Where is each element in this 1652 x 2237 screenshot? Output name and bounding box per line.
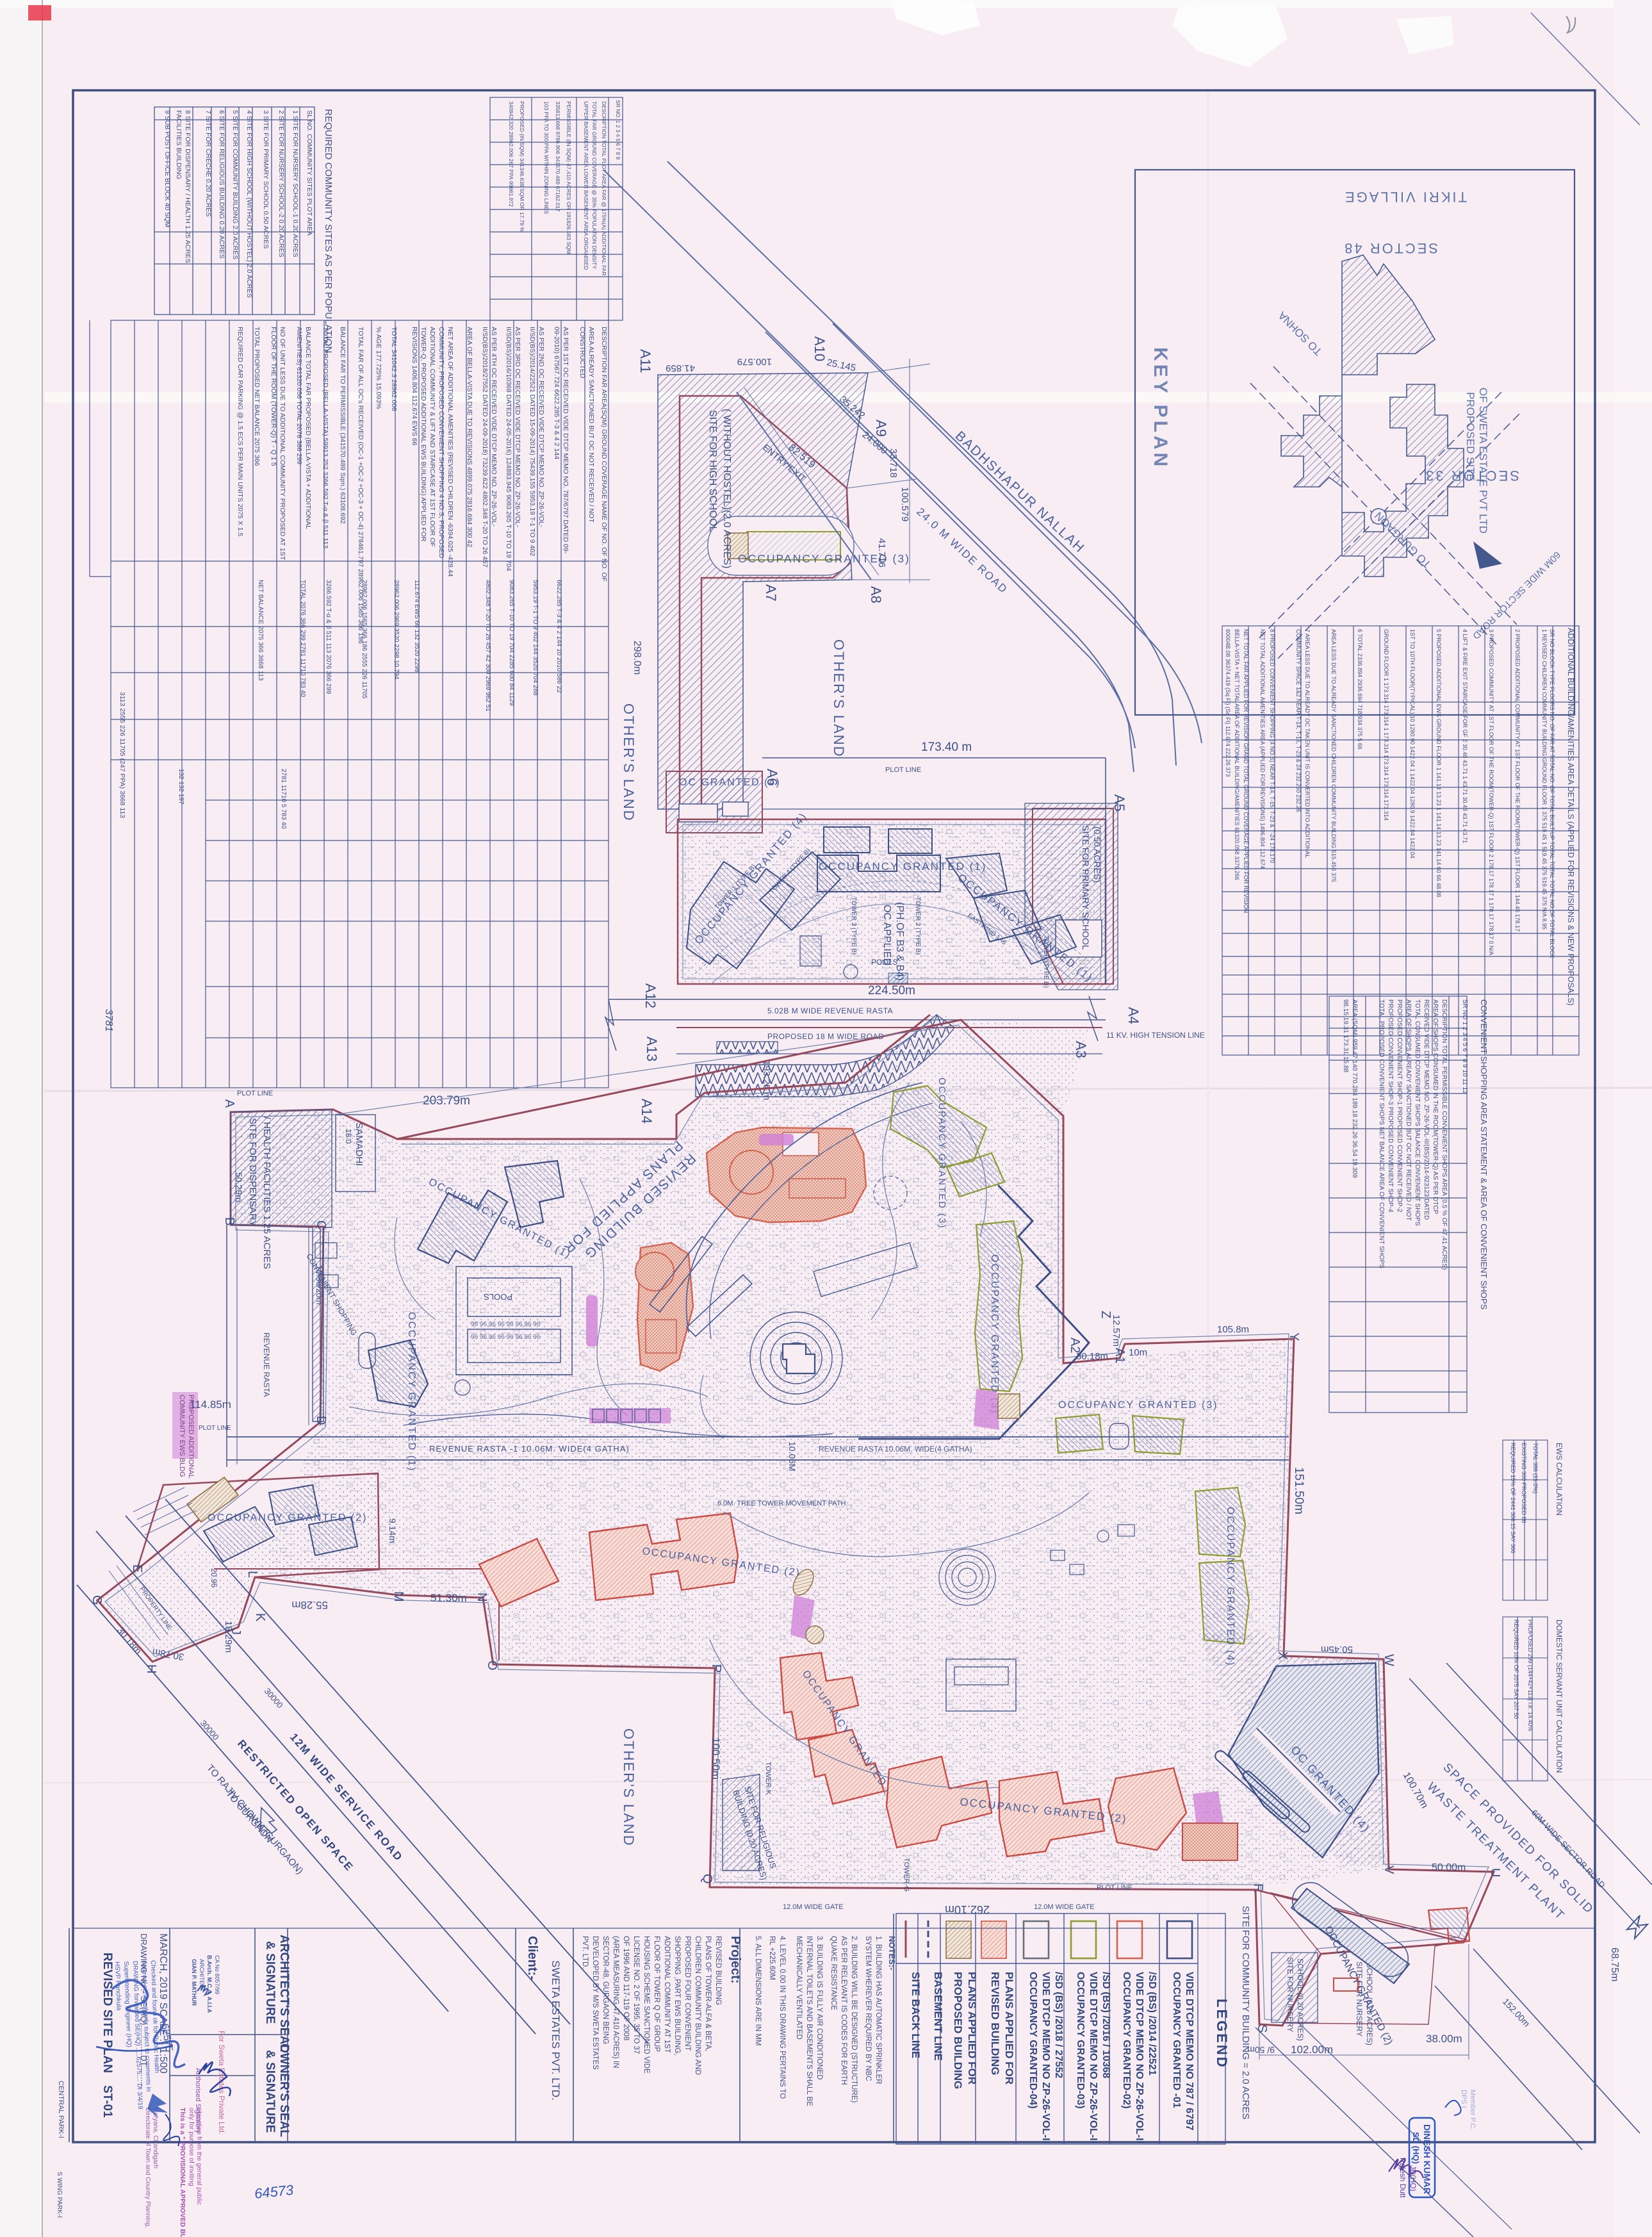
svg-text:3 PROPOSED COMMUNITY AT 1ST: 3 PROPOSED COMMUNITY AT 1ST FLOOR OF THE… — [1488, 629, 1494, 955]
svg-text:2. BUILDING WILL BE DESIGNED (: 2. BUILDING WILL BE DESIGNED (STRUCTURE) — [850, 1936, 858, 2102]
svg-text:340942.320 28962.006 267 P: 340942.320 28962.006 267 PPA 99661.972 — [508, 101, 514, 207]
svg-text:TOWER 3 (TYPE B): TOWER 3 (TYPE B) — [850, 897, 857, 955]
svg-text:50.29m: 50.29m — [234, 1172, 244, 1202]
svg-text:/ HEALTH FACILITIES 1.25 ACRES: / HEALTH FACILITIES 1.25 ACRES — [261, 1117, 272, 1269]
svg-text:3781: 3781 — [103, 1009, 114, 1032]
svg-text:SWETA ESTATES PVT. LTD.: SWETA ESTATES PVT. LTD. — [550, 1960, 562, 2101]
svg-text:This is a " PROVISIONAL APPROV: This is a " PROVISIONAL APPROVED BUILDIN… — [179, 2108, 186, 2237]
svg-text:100.579: 100.579 — [737, 356, 772, 367]
svg-text:FACILITIES BUILDING: FACILITIES BUILDING — [175, 110, 183, 179]
svg-text:100.579: 100.579 — [899, 487, 910, 521]
svg-text:96 96 96 96 96 96 96 96: 96 96 96 96 96 96 96 96 — [471, 1334, 541, 1341]
svg-text:18.0: 18.0 — [344, 1129, 353, 1144]
svg-text:CA No 8057/99: CA No 8057/99 — [214, 1955, 220, 1994]
svg-text:II/SD(BS)/2018/27552 DATED 24-: II/SD(BS)/2018/27552 DATED 24-09-2018) 7… — [481, 327, 489, 568]
svg-text:COMMUNITY EWS BLDG: COMMUNITY EWS BLDG — [178, 1395, 186, 1477]
svg-text:8 SITE FOR DISPENSARY / HEAL: 8 SITE FOR DISPENSARY / HEALTH 1.25 ACRE… — [184, 110, 192, 263]
svg-text:PROPOSED BUILDING: PROPOSED BUILDING — [952, 1972, 964, 2089]
svg-text:2 SITE FOR NURSERY SCHOOL-2: 2 SITE FOR NURSERY SCHOOL-2 0.20 ACRES — [277, 110, 285, 258]
svg-text:50.45m: 50.45m — [1321, 1644, 1353, 1655]
svg-text:% AGE: % AGE 177.725% 15.093% — [375, 327, 382, 409]
svg-text:DOMESTIC SERVANT UNIT CALCULAT: DOMESTIC SERVANT UNIT CALCULATION — [1555, 1619, 1564, 1773]
svg-text:7 SITE FOR CRECHE: 7 SITE FOR CRECHE 0.20 ACRES — [204, 110, 212, 217]
svg-text:D: D — [314, 1416, 328, 1425]
svg-text:112.674 EWS 66: 112.674 EWS 66 132 3520 2298 — [413, 580, 420, 673]
svg-text:OTHER'S LAND: OTHER'S LAND — [621, 703, 637, 822]
svg-text:POOLS: POOLS — [484, 1292, 512, 1302]
svg-text:51.30m: 51.30m — [430, 1592, 467, 1604]
svg-text:1ST TO 10TH FLOOR(TYPICAL) 1: 1ST TO 10TH FLOOR(TYPICAL) 10 1280.90 14… — [1409, 629, 1416, 858]
svg-text:S WING PARK-I: S WING PARK-I — [56, 2172, 63, 2218]
svg-text:114.85m: 114.85m — [190, 1398, 231, 1411]
svg-text:Q: Q — [700, 1874, 714, 1884]
svg-text:3266.592 T-α & β 511: 3266.592 T-α & β 511 113 2076 366 299 — [325, 580, 332, 694]
svg-text:PVT. LTD.: PVT. LTD. — [581, 1936, 589, 1969]
svg-text:OCCUPANCY GRANTED (1): OCCUPANCY GRANTED (1) — [819, 860, 986, 873]
svg-text:BELLA-VISTA + NET TOTAL AREA O: BELLA-VISTA + NET TOTAL AREA OF ADDITION… — [1234, 629, 1240, 880]
svg-text:(0.50 ACRES): (0.50 ACRES) — [1092, 826, 1102, 883]
svg-text:PLANS OF TOWER-ALFA & BETA,: PLANS OF TOWER-ALFA & BETA, — [704, 1936, 712, 2051]
svg-text:OCCUPANCY GRANTED (3): OCCUPANCY GRANTED (3) — [1058, 1400, 1218, 1411]
svg-text:262.10m: 262.10m — [945, 1903, 990, 1916]
svg-text:TOTAL FAR GROUND COVERAGE @ 3: TOTAL FAR GROUND COVERAGE @ 35% POPULATI… — [591, 101, 598, 269]
svg-text:PERMISSIBLE (IN SQM) 47,410 A: PERMISSIBLE (IN SQM) 47,410 ACRES OR 191… — [566, 101, 572, 254]
svg-text:Y: Y — [1287, 1332, 1301, 1341]
svg-text:12.0M WIDE GATE: 12.0M WIDE GATE — [783, 1903, 844, 1911]
svg-text:/SD (BS) /2014 /22521: /SD (BS) /2014 /22521 — [1147, 1972, 1157, 2076]
svg-text:H: H — [144, 1664, 158, 1673]
svg-text:9 SUB POST OFFICE BLOCK: 9 SUB POST OFFICE BLOCK 40 SQM — [163, 110, 171, 227]
svg-text:PLANS APPLIED FOR: PLANS APPLIED FOR — [966, 1972, 978, 2085]
svg-text:41.716: 41.716 — [876, 538, 887, 568]
svg-text:( WITHOUT HOSTEL)(2.0 ACRES): ( WITHOUT HOSTEL)(2.0 ACRES) — [721, 409, 732, 569]
svg-text:B: B — [222, 1217, 236, 1225]
svg-text:TOTAL CONSUMED CONVENIENT SHOP: TOTAL CONSUMED CONVENIENT SHOPS BALANCE … — [1414, 999, 1421, 1226]
svg-text:REVENUE RASTA 10.06M. WIDE(4 G: REVENUE RASTA 10.06M. WIDE(4 GATHA) — [819, 1445, 972, 1454]
svg-text:TOTAL PROPOSED: TOTAL PROPOSED NET BALANCE 2075 366 — [253, 327, 261, 466]
svg-text:COMMUNITY, PROPOSED CONVENIENT: COMMUNITY, PROPOSED CONVENIENT SHOPPING … — [438, 327, 445, 559]
svg-text:QUAKE RESISTANCE: QUAKE RESISTANCE — [830, 1936, 837, 2010]
svg-text:ADDITIONAL COMMUNITY AT 1ST: ADDITIONAL COMMUNITY AT 1ST — [663, 1936, 671, 2053]
svg-text:SECTOR-48, GURGAON BEING: SECTOR-48, GURGAON BEING — [601, 1936, 609, 2044]
svg-text:NET TOTAL FAR APPLIED FOR REVI: NET TOTAL FAR APPLIED FOR REVISION GRAND… — [1243, 629, 1249, 913]
svg-text:C: C — [314, 1220, 328, 1229]
svg-text:V: V — [1382, 1865, 1396, 1874]
svg-text:KEY PLAN: KEY PLAN — [1150, 347, 1171, 470]
svg-text:RL +225.60M: RL +225.60M — [768, 1936, 776, 1980]
svg-text:CONVENIENT SHOPPING AREA STATE: CONVENIENT SHOPPING AREA STATEMENT & ARE… — [1479, 999, 1489, 1310]
svg-text:3 SITE FOR PRIMARY SCHOOL: 3 SITE FOR PRIMARY SCHOOL 0.50 ACRES — [262, 110, 270, 249]
svg-text:AMENITIES): AMENITIES) 61320.056 TOTAL 2076 366 299 — [295, 327, 303, 464]
svg-text:28962.006: 28962.006 2969 3520 2298 10 794 — [393, 580, 400, 680]
svg-text:MECHANICALLY VENTILATED: MECHANICALLY VENTILATED — [795, 1936, 803, 2040]
svg-text:9083.265 T-10 TO 19 70: 9083.265 T-10 TO 19 704 2285 600 84 1129 — [508, 580, 515, 706]
svg-text:PLANS APPLIED FOR: PLANS APPLIED FOR — [1003, 1972, 1015, 2085]
svg-text:5. ALL DIMENSIONS ARE IN MM: 5. ALL DIMENSIONS ARE IN MM — [754, 1936, 762, 2045]
svg-text:SITE FOR HIGH SCHOOL: SITE FOR HIGH SCHOOL — [707, 410, 718, 532]
svg-text:SR NO. 1 2 3 4 5 6 7 8: SR NO. 1 2 3 4 5 6 7 8 9 — [615, 100, 621, 160]
svg-text:TOWER 2 (TYPE B): TOWER 2 (TYPE B) — [914, 897, 921, 955]
svg-text:TOTAL: TOTAL 341042.3 28962.006 — [390, 327, 398, 411]
svg-text:GROUND FLOOR 1 173.314 1: GROUND FLOOR 1 173.314 173.314 1 173.314… — [1383, 629, 1389, 821]
svg-text:AS PER 3RD OC RECEIVED VIDE DT: AS PER 3RD OC RECEIVED VIDE DTCP MEMO NO… — [514, 327, 521, 528]
svg-text:12.57m: 12.57m — [1111, 1315, 1122, 1347]
svg-text:EXISTING 300 PROPOSED 86: EXISTING 300 PROPOSED 86 — [1521, 1443, 1527, 1523]
svg-text:2781 11710 5 7: 2781 11710 5 783 40 — [280, 769, 287, 829]
svg-text:50.00m: 50.00m — [1432, 1862, 1466, 1873]
svg-text:AREA OF BELLA-VISTA DUE TO REV: AREA OF BELLA-VISTA DUE TO REVISIONS 489… — [466, 327, 473, 548]
svg-text:PLOT LINE: PLOT LINE — [199, 1425, 231, 1432]
svg-text:REVENUE RASTA -1 10.06: REVENUE RASTA -1 10.06M. WIDE(4 GATHA) — [429, 1444, 630, 1454]
svg-text:224.50m: 224.50m — [868, 984, 915, 997]
svg-text:A5: A5 — [1111, 794, 1127, 812]
svg-text:DINESH KUMAR: DINESH KUMAR — [1422, 2124, 1432, 2194]
svg-text:A7: A7 — [763, 584, 779, 602]
svg-text:REQUIRED 10% OF 2075 SAY 207.: REQUIRED 10% OF 2075 SAY 207.50 — [1513, 1619, 1519, 1719]
svg-text:OC APPLIED: OC APPLIED — [881, 905, 892, 965]
svg-text:TOWER (TYPE B): TOWER (TYPE B) — [1042, 935, 1049, 988]
svg-text:OCCUPANCY GRANTED-02): OCCUPANCY GRANTED-02) — [1121, 1972, 1132, 2109]
svg-text:OC GRANTED (4): OC GRANTED (4) — [679, 777, 781, 788]
svg-text:TOTAL PROPOSED (BELLA-VISTA): TOTAL PROPOSED (BELLA-VISTA) 59913.252 3… — [322, 327, 329, 548]
svg-text:VIDE DTCP MEMO NO ZP-26-VOL-II: VIDE DTCP MEMO NO ZP-26-VOL-II — [1040, 1972, 1051, 2143]
svg-text:CHILDREN COMMUNITY BUILDING AN: CHILDREN COMMUNITY BUILDING AND — [694, 1936, 701, 2075]
svg-text:SR NO BLOCK TYPE FLOO: SR NO BLOCK TYPE FLOORS NO. OF FAR AT TO… — [1549, 629, 1555, 958]
svg-text:5 SITE FOR COMMUNITY BUILDIN: 5 SITE FOR COMMUNITY BUILDING 2.0 ACRES — [231, 110, 239, 259]
svg-text:DESCRIPTION TOTAL PLOT AREA: DESCRIPTION TOTAL PLOT AREA FAR @ 175%(A… — [601, 101, 607, 275]
svg-text:Client:-: Client:- — [525, 1936, 539, 1980]
svg-text:PROPOSED FOUR CONVENIENT: PROPOSED FOUR CONVENIENT — [683, 1936, 691, 2051]
svg-text:OWNER'S SEAL: OWNER'S SEAL — [277, 2044, 291, 2137]
svg-text:105.8m: 105.8m — [1217, 1324, 1249, 1335]
svg-text:5 PROPOSED ADDITIONAL EWS: 5 PROPOSED ADDITIONAL EWS GROUND FLOOR 1… — [1435, 629, 1442, 897]
svg-text:OCCUPANCY GRANTED (3): OCCUPANCY GRANTED (3) — [936, 1078, 947, 1229]
svg-text:Member P.C.: Member P.C. — [1469, 2090, 1476, 2130]
svg-text:REVISED BUILDING: REVISED BUILDING — [989, 1972, 1001, 2076]
svg-text:151.50m: 151.50m — [1292, 1467, 1305, 1514]
svg-text:& SIGNATURE: & SIGNATURE — [263, 2050, 277, 2133]
svg-text:/SD (BS) /2016 / 10368: /SD (BS) /2016 / 10368 — [1100, 1972, 1111, 2078]
svg-text:4 LIFT & FIRE EXIT STAIRCAS: 4 LIFT & FIRE EXIT STAIRCASE FOR GF 2 30… — [1462, 629, 1468, 843]
svg-text:NET BALANCE 2075 366: NET BALANCE 2075 366 3668 113 — [257, 580, 264, 681]
svg-text:II/SD(BS)/2014/22521 DATED 15-: II/SD(BS)/2014/22521 DATED 15-09-2014) 7… — [528, 327, 536, 556]
svg-text:33.718: 33.718 — [888, 448, 899, 478]
svg-text:AREA ALREADY SANCTIONED BUT OC: AREA ALREADY SANCTIONED BUT OC NOT RECEI… — [587, 327, 595, 523]
svg-text:SECTOR 48: SECTOR 48 — [1343, 240, 1438, 256]
svg-text:1. BUILDING HAS AUTOMATIC SPR: 1. BUILDING HAS AUTOMATIC SPRINKLER — [874, 1936, 882, 2085]
svg-text:INTERNAL TOILETS AND BASEME: INTERNAL TOILETS AND BASEMENTS SHALL BE — [805, 1936, 813, 2106]
svg-text:TOTAL 386 (15.0%): TOTAL 386 (15.0%) — [1532, 1443, 1539, 1493]
svg-text:CONSTRUCTED: CONSTRUCTED — [578, 327, 586, 379]
svg-text:A9: A9 — [873, 420, 889, 437]
svg-text:PROPOSED 299 (144+42+113) i.e.: PROPOSED 299 (144+42+113) i.e. 14.40% — [1527, 1619, 1533, 1731]
svg-text:6.0M. TREE TOWER MOVEMENT PATH: 6.0M. TREE TOWER MOVEMENT PATH — [717, 1500, 846, 1507]
svg-text:AS PER 1ST OC RECEIVED VIDE DT: AS PER 1ST OC RECEIVED VIDE DTCP MEMO NO… — [562, 327, 569, 554]
svg-text:18.29m: 18.29m — [223, 1621, 234, 1653]
svg-text:RECEIVED VIDE DTCP MEMO NO. ZP: RECEIVED VIDE DTCP MEMO NO. ZP-26-VOL-II… — [1423, 999, 1430, 1220]
svg-text:9/ 50m: 9/ 50m — [1247, 2045, 1275, 2055]
svg-text:(PH.OF B3 & B4): (PH.OF B3 & B4) — [894, 902, 905, 981]
svg-text:6622.285 T-3 & 4 2: 6622.285 T-3 & 4 2 144 10 2010 586 22 — [555, 580, 562, 693]
svg-text:Authorised Signatory: Authorised Signatory — [194, 2068, 202, 2134]
svg-text:OCCUPANCY GRANTED-03): OCCUPANCY GRANTED-03) — [1075, 1972, 1086, 2109]
svg-text:20.96: 20.96 — [209, 1568, 218, 1587]
svg-text:M: M — [391, 1591, 405, 1602]
svg-text:PLOT LINE: PLOT LINE — [885, 766, 921, 774]
svg-text:60004B.08 36374.419 (Sq Ft: 60004B.08 36374.419 (Sq Ft) (Sq Ft) 112.… — [1225, 629, 1231, 777]
svg-text:AS PER 2ND OC RECEIVED VIDE DT: AS PER 2ND OC RECEIVED VIDE DTCP MEMO NO… — [537, 327, 545, 528]
svg-text:L: L — [245, 1571, 259, 1578]
svg-text:TOTAL 2076 366: TOTAL 2076 366 299 2781 11710 783 40 — [299, 580, 306, 698]
svg-text:REQUIRED 15% OF 2441 386.15 S: REQUIRED 15% OF 2441 386.15 SAY 366 — [1510, 1443, 1516, 1553]
svg-text:A12: A12 — [642, 983, 658, 1008]
svg-text:BALANCE TOTAL FAR PROPOSED (BE: BALANCE TOTAL FAR PROPOSED (BELLA-VISTA … — [304, 327, 312, 529]
svg-text:1 REVISED CHILDREN COMMUNIT: 1 REVISED CHILDREN COMMUNITY BUILDING GR… — [1541, 629, 1548, 930]
svg-text:AS PER RELEVANT IS CODES FOR E: AS PER RELEVANT IS CODES FOR EARTH — [840, 1936, 847, 2085]
svg-text:1 SITE FOR NURSERY SCHOOL-1: 1 SITE FOR NURSERY SCHOOL-1 0.20 ACRES — [291, 110, 299, 258]
svg-text:PLOT LINE: PLOT LINE — [237, 1090, 273, 1097]
svg-text:COMMUNITY SPACE 1&2 NEAR T-14,: COMMUNITY SPACE 1&2 NEAR T-14, T-15, T-2… — [1295, 629, 1302, 812]
svg-text:OCCUPANCY GRANTED -01: OCCUPANCY GRANTED -01 — [1171, 1972, 1182, 2108]
svg-text:09-2010): 09-2010) 67567.724 6622.285 T-3 & 4 2 14… — [553, 327, 560, 459]
svg-text:SITE FOR PRIMARY SCHOOL: SITE FOR PRIMARY SCHOOL — [1081, 825, 1091, 950]
svg-text:TOTAL PROPOSED CONVENIENT SHOP: TOTAL PROPOSED CONVENIENT SHOPS NET BALA… — [1378, 999, 1385, 1268]
svg-text:TIKRI VILLAGE: TIKRI VILLAGE — [1343, 189, 1467, 205]
svg-text:NOTES:-: NOTES:- — [887, 1936, 897, 1970]
svg-text:4802.348 T-20 TO 26 45: 4802.348 T-20 TO 26 457 42 300 2969 962 … — [484, 580, 491, 712]
svg-text:& SIGNATURE: & SIGNATURE — [263, 1941, 277, 2024]
svg-text:SHOPPING ,PART EWS BUILDING,: SHOPPING ,PART EWS BUILDING, — [673, 1936, 681, 2056]
svg-text:96 96 96 96 96 96 96 96: 96 96 96 96 96 96 96 96 — [471, 1321, 541, 1328]
svg-text:SAMADHI: SAMADHI — [354, 1122, 364, 1166]
svg-text:K: K — [253, 1613, 267, 1622]
svg-text:ADDITIONAL BUILDING/AMENITIES: ADDITIONAL BUILDING/AMENITIES AREA DETAI… — [1566, 628, 1575, 1006]
svg-text:NET AREA OF ADDITIONAL AMENITI: NET AREA OF ADDITIONAL AMENITIES (REVISE… — [446, 327, 454, 577]
svg-text:98.15 19.31 173.31 15.88: 98.15 19.31 173.31 15.88 — [1342, 999, 1349, 1072]
svg-text:8 PROPOSED CONVENIENT SHOPP: 8 PROPOSED CONVENIENT SHOPPING (4 NO.S) … — [1269, 629, 1275, 863]
svg-text:PLOT LINE: PLOT LINE — [1097, 1884, 1133, 1892]
svg-text:Directorate of Town and Countr: Directorate of Town and Country Planning… — [144, 2108, 151, 2228]
svg-text:SITE FOR NURSERY: SITE FOR NURSERY — [1286, 1957, 1295, 2032]
svg-text:BASEMENT LINE: BASEMENT LINE — [932, 1972, 944, 2061]
svg-text:A14: A14 — [639, 1099, 655, 1124]
svg-text:5953.19 T-1 TO 9 402: 5953.19 T-1 TO 9 402 144 3520 704 288 — [532, 580, 539, 696]
svg-text:4 SITE FOR HIGH SCHOOL (WITH: 4 SITE FOR HIGH SCHOOL (WITHOUT HOSTEL) … — [245, 110, 253, 298]
svg-text:AREA OF SHOPS ALREADY SANCTION: AREA OF SHOPS ALREADY SANCTIONED BUT OC … — [1405, 999, 1412, 1221]
svg-text:TOWER-Q, PROPOSED ADDITIONAL E: TOWER-Q, PROPOSED ADDITIONAL EWS BUILDIN… — [420, 327, 427, 542]
svg-text:X: X — [1275, 1651, 1289, 1660]
svg-text:TOWER-K: TOWER-K — [764, 1762, 772, 1795]
svg-text:A: A — [222, 1099, 236, 1108]
svg-text:LICENSE NO. 2 OF 1995, 35 TO 3: LICENSE NO. 2 OF 1995, 35 TO 37 — [632, 1936, 640, 2054]
svg-text:DESCRIPTION TOTAL PERMISSIBL: DESCRIPTION TOTAL PERMISSIBLE CONVENIENT… — [1441, 999, 1448, 1270]
svg-text:CENTRAL PARK-I: CENTRAL PARK-I — [57, 2081, 65, 2138]
svg-text:AREA OF SHOPS CONSUMED IN THE: AREA OF SHOPS CONSUMED IN THE ROOM(TOWER… — [1432, 999, 1439, 1215]
svg-text:SECTOR 33: SECTOR 33 — [1424, 468, 1519, 484]
svg-text:REQUIRED COMMUNITY SITES AS PE: REQUIRED COMMUNITY SITES AS PER POPULATI… — [323, 109, 334, 353]
svg-text:AREA (SQM) 959.47 140 77: AREA (SQM) 959.47 140 770.284 189.18 232… — [1351, 999, 1358, 1178]
svg-text:28962.006 1565 366: 28962.006 1565 366 186 2555 226 11705 — [361, 580, 368, 699]
svg-text:NO OF UNIT LESS DUE TO ADDITIO: NO OF UNIT LESS DUE TO ADDITIONAL COMMUN… — [279, 327, 286, 561]
svg-text:VIDE DTCP MEMO NO 787 / 6797: VIDE DTCP MEMO NO 787 / 6797 — [1184, 1972, 1195, 2131]
svg-text:PROPOSED (IN SQM) 341346.638: PROPOSED (IN SQM) 341346.638 SQM OR 17.7… — [519, 101, 525, 233]
svg-text:OTHER'S LAND: OTHER'S LAND — [831, 639, 847, 758]
svg-text:6 SITE FOR RELIGIOUS BUILDIN: 6 SITE FOR RELIGIOUS BUILDING 0.20 ACRES — [218, 110, 225, 259]
svg-text:DPS I: DPS I — [1460, 2090, 1468, 2108]
svg-text:SR NO 1 2 3 4 5 6: SR NO 1 2 3 4 5 6 7 8 9 10 11 12 — [1461, 999, 1468, 1094]
svg-text:OF SWETA ESTATE PVT LTD: OF SWETA ESTATE PVT LTD — [1477, 388, 1489, 534]
svg-text:REVENUE RASTA: REVENUE RASTA — [262, 1332, 271, 1397]
svg-text:REVISIONS: REVISIONS 1406.804 112.674 EWS 66 — [411, 327, 418, 446]
svg-text:B.Arch. M.C.A. A.I.I.A: B.Arch. M.C.A. A.I.I.A — [206, 1955, 213, 2013]
svg-text:EWS CALCULATION: EWS CALCULATION — [1555, 1443, 1564, 1516]
svg-text:9.14m: 9.14m — [388, 1518, 398, 1543]
svg-text:41.859: 41.859 — [666, 363, 695, 373]
svg-text:PROPOSED CONVENIENT SHOP-3 P: PROPOSED CONVENIENT SHOP-3 PROPOSED CONV… — [1387, 999, 1394, 1213]
svg-text:NET TOTAL ADDITIONAL AMENITIES: NET TOTAL ADDITIONAL AMENITIES AREA (APP… — [1259, 629, 1266, 869]
svg-text:335813.668 9786.906 34157: 335813.668 9786.906 341570.489 67162.017 — [555, 101, 561, 212]
svg-text:REQUIRED CAR PARKING @ 1.5 ECS: REQUIRED CAR PARKING @ 1.5 ECS PER MAIN … — [236, 327, 244, 536]
svg-text:FLOOR OF THE ROOM (TOWER-Q): FLOOR OF THE ROOM (TOWER-Q) T - Q 1 5 — [270, 327, 277, 466]
svg-text:A10: A10 — [812, 336, 828, 361]
svg-text:TOWER-G: TOWER-G — [903, 1858, 910, 1892]
svg-text:OTHER'S LAND: OTHER'S LAND — [621, 1728, 637, 1847]
svg-text:132 1: 132 132 197 — [177, 769, 184, 805]
svg-text:ADDITIONAL COMMUNITY & LIFT AN: ADDITIONAL COMMUNITY & LIFT AND STAIRCAS… — [429, 327, 436, 547]
svg-text:55.28m: 55.28m — [291, 1599, 328, 1611]
svg-text:100.50m: 100.50m — [710, 1737, 722, 1780]
svg-text:ARCHITECT'S SEAL: ARCHITECT'S SEAL — [277, 1935, 291, 2052]
svg-text:2 PROPOSED ADDITIONAL COMMU: 2 PROPOSED ADDITIONAL COMMUNITY AT 1ST F… — [1514, 629, 1521, 931]
svg-text:N: N — [475, 1593, 489, 1602]
svg-text:4. LEVEL 0.00 IN THIS DRAW: 4. LEVEL 0.00 IN THIS DRAWING PERTAINS T… — [778, 1936, 786, 2099]
svg-text:BALANCE FAR TO PERMISSIBLE (34: BALANCE FAR TO PERMISSIBLE (341570.489 S… — [339, 327, 347, 524]
svg-text:SITE BACK LINE: SITE BACK LINE — [910, 1972, 922, 2058]
svg-text:A8: A8 — [868, 586, 884, 603]
svg-text:DEVELOPED BY M/S SWETA ESTATES: DEVELOPED BY M/S SWETA ESTATES — [591, 1936, 599, 2070]
svg-text:OCCUPANCY GRANTED (2): OCCUPANCY GRANTED (2) — [208, 1512, 367, 1523]
svg-text:REVISED BUILDING: REVISED BUILDING — [714, 1936, 722, 2005]
svg-text:10m: 10m — [1129, 1347, 1147, 1358]
svg-text:OCCUPANCY GRANTED-04): OCCUPANCY GRANTED-04) — [1027, 1972, 1038, 2109]
svg-text:II/SD(BS)/2016/10368 DATED 24-: II/SD(BS)/2016/10368 DATED 24-05-2016) 1… — [505, 327, 512, 571]
svg-text:3. BUILDING IS FULLY AIR CONDI: 3. BUILDING IS FULLY AIR CONDITIONED — [815, 1936, 823, 2080]
svg-text:U: U — [1488, 1868, 1502, 1877]
svg-text:12.0M WIDE GATE: 12.0M WIDE GATE — [1034, 1903, 1095, 1911]
svg-text:68.75m: 68.75m — [1609, 1947, 1620, 1981]
svg-text:OCCUPANCY GRANTED (3): OCCUPANCY GRANTED (3) — [989, 1254, 1000, 1414]
svg-text:LEGEND: LEGEND — [1214, 1999, 1230, 2069]
svg-text:173.40 m: 173.40 m — [921, 741, 972, 754]
svg-text:REVISED SITE PLAN: REVISED SITE PLAN — [101, 1953, 114, 2073]
svg-text:SCHOOL (0.20 ACRES): SCHOOL (0.20 ACRES) — [1296, 1958, 1305, 2041]
svg-text:(AREA MEASURING 47.410 ACRES): (AREA MEASURING 47.410 ACRES) IN — [612, 1936, 619, 2068]
svg-text:11 KV. HIGH TENSION LINE: 11 KV. HIGH TENSION LINE — [1106, 1031, 1205, 1040]
svg-text:A11: A11 — [637, 349, 653, 373]
svg-text:AREA LESS DUE TO ALREADY SANCT: AREA LESS DUE TO ALREADY SANCTIONED CHIL… — [1330, 629, 1337, 882]
svg-text:SITE FOR COMMUNITY BUILDING =: SITE FOR COMMUNITY BUILDING = 2.0 ACRES — [1240, 1906, 1251, 2120]
svg-text:7 AREA LESS DUE TO ALREADY: 7 AREA LESS DUE TO ALREADY OC TAKEN UNIT… — [1304, 629, 1311, 858]
svg-text:OF 1996 AND 117-119 OF 2008: OF 1996 AND 117-119 OF 2008 — [622, 1936, 630, 2040]
svg-text:298.0m: 298.0m — [632, 641, 642, 675]
svg-text:5.02B M WIDE REVENUE RASTA: 5.02B M WIDE REVENUE RASTA — [767, 1006, 893, 1015]
svg-text:PROPOSED CONVENIENT SHOP-1 P: PROPOSED CONVENIENT SHOP-1 PROPOSED CONV… — [1396, 999, 1403, 1213]
svg-text:FLOOR OF TOWER Q OF GROUP: FLOOR OF TOWER Q OF GROUP — [653, 1936, 660, 2052]
svg-text:W: W — [1382, 1654, 1396, 1666]
svg-text:Z: Z — [1099, 1311, 1113, 1318]
svg-text:6 TOTAL 2336.894 2936.6: 6 TOTAL 2336.894 2936.694 718.934 375 5 … — [1357, 629, 1363, 750]
svg-text:GIAN P. MATHUR: GIAN P. MATHUR — [191, 1959, 197, 2006]
svg-text:O: O — [485, 1660, 499, 1671]
svg-text:Project:: Project: — [728, 1936, 742, 1983]
svg-text:P: P — [709, 1664, 723, 1673]
svg-text:SD (HQ): SD (HQ) — [1411, 2132, 1421, 2164]
svg-text:A4: A4 — [1125, 1007, 1141, 1024]
svg-text:ST-01: ST-01 — [101, 2085, 114, 2118]
svg-text:HOUSING SCHEME SANCTIONED VIDE: HOUSING SCHEME SANCTIONED VIDE — [642, 1936, 650, 2074]
svg-text:G: G — [90, 1595, 104, 1605]
svg-text:DESCRIPTION: DESCRIPTION FAR AREA(SQM) GROUND COVERAG… — [600, 327, 608, 582]
svg-text:SYSTEM WHEREVER REQUIRED BY NB: SYSTEM WHEREVER REQUIRED BY NBC — [864, 1936, 872, 2081]
svg-text:A1: A1 — [1113, 1348, 1127, 1363]
svg-text:A13: A13 — [644, 1037, 660, 1061]
svg-text:AS PER 4TH OC RECEIVED VIDE DT: AS PER 4TH OC RECEIVED VIDE DTCP MEMO NO… — [490, 327, 498, 527]
svg-text:UPPER BASEMENT AREA LOWER BAS: UPPER BASEMENT AREA LOWER BASEMENT AREA … — [583, 101, 589, 270]
svg-text:/SD (BS) /2018 / 27552: /SD (BS) /2018 / 27552 — [1053, 1972, 1064, 2078]
svg-text:SITE FOR DISPENSARY: SITE FOR DISPENSARY — [247, 1118, 258, 1227]
svg-text:10.06M: 10.06M — [787, 1441, 797, 1471]
svg-text:30.18m: 30.18m — [1076, 1351, 1108, 1362]
svg-text:38.00m: 38.00m — [1426, 2033, 1462, 2045]
svg-text:VIDE DTCP MEMO NO ZP-26-VOL-II: VIDE DTCP MEMO NO ZP-26-VOL-II — [1134, 1972, 1145, 2143]
svg-text:VIDE DTCP MEMO NO ZP-26-VOL-II: VIDE DTCP MEMO NO ZP-26-VOL-II — [1088, 1972, 1099, 2143]
svg-text:SL NO. COMMUNITY SITES: SL NO. COMMUNITY SITES PLOT AREA — [306, 110, 313, 236]
svg-text:103 PPA TO 300 PPA WITHIN ZO: 103 PPA TO 300 PPA WITHIN ZONING LINES — [543, 101, 550, 214]
svg-text:3113 2555 226: 3113 2555 226 11705 (247 PPA) 3668 113 — [119, 692, 126, 818]
